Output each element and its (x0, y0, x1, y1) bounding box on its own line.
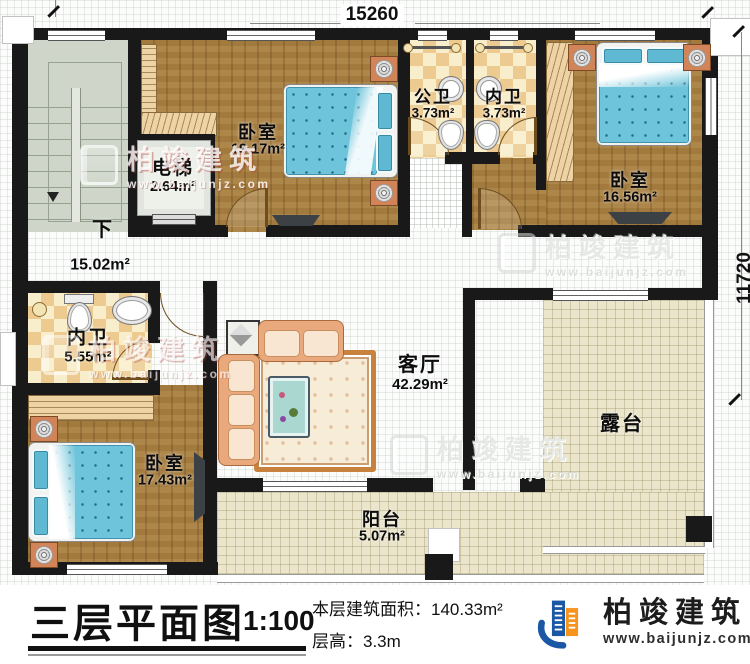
window-box-top-right (710, 18, 750, 56)
sink (112, 296, 152, 325)
floor-area-text: 本层建筑面积：140.33m² (312, 595, 503, 620)
wall-vestibule-divider (462, 158, 472, 237)
nightstand (30, 416, 58, 442)
room-label-balcony: 阳台 5.07m² (359, 510, 405, 545)
title-underline (28, 646, 306, 651)
lamp-icon (35, 546, 53, 564)
window-public-bath (418, 30, 447, 41)
rail-end (523, 43, 533, 53)
hallway-area-label: 15.02m² (70, 256, 130, 273)
wall-bath-bottom-a (398, 152, 408, 164)
lamp-icon (35, 420, 53, 438)
title-block: 三层平面图 1:100 本层建筑面积：140.33m² 层高：3.3m 柏竣建筑 (0, 585, 750, 664)
room-label-bedroom-bottom: 卧室 17.43m² (138, 454, 192, 489)
lamp-icon (375, 60, 393, 78)
stair-direction-arrow (47, 192, 59, 208)
sofa-loveseat (258, 320, 344, 362)
terrace-railing-bottom (543, 546, 705, 554)
elevator-door (152, 214, 196, 225)
corner-table (226, 320, 260, 356)
wall-living-bottom-a (217, 478, 263, 492)
wall-ensuite-left-bottom (12, 383, 160, 395)
room-label-bedroom-right: 卧室 16.56m² (603, 171, 657, 206)
dim-line (415, 23, 600, 24)
sofa-three-seat (218, 354, 260, 466)
dim-tick (701, 6, 713, 18)
wall-outer-left (12, 28, 28, 575)
wall-living-bottom-b (367, 478, 433, 492)
room-label-public-bath: 公卫 3.73m² (412, 89, 455, 122)
tv-top-bedroom (272, 215, 320, 226)
dim-tick (47, 5, 59, 17)
watermark-logo-icon (498, 233, 536, 273)
balcony-post (425, 554, 453, 580)
floor-plan-page: 下 电梯 2.64m² 卧室 19.17m² 公卫 3.73m² 内卫 3.73… (0, 0, 750, 664)
room-label-ensuite-left: 内卫 5.55m² (64, 329, 112, 366)
nightstand (683, 44, 711, 71)
dim-line (250, 23, 342, 24)
rail-end (451, 43, 461, 53)
stair-void-outline (48, 62, 122, 222)
stair-rail (71, 88, 81, 222)
flower-decor (279, 392, 285, 398)
flower-decor (289, 408, 298, 417)
wall-hall-top-a (128, 225, 228, 237)
lamp-icon (688, 49, 706, 67)
company-website: www.baijunjz.com (603, 631, 750, 647)
room-label-ensuite-top: 内卫 3.73m² (483, 89, 526, 122)
tv-right-bedroom (608, 212, 672, 224)
stairs-down-label: 下 (92, 220, 114, 242)
shower-head (32, 302, 47, 317)
coffee-table (268, 376, 310, 438)
terrace-post (686, 516, 712, 542)
dim-tick (728, 393, 740, 405)
wall-hall-top-b (266, 225, 410, 237)
bed-top-bedroom (283, 84, 398, 178)
dim-line-right (741, 32, 742, 400)
floor-plan-canvas: 下 电梯 2.64m² 卧室 19.17m² 公卫 3.73m² 内卫 3.73… (0, 0, 750, 585)
window-balcony (263, 481, 367, 492)
company-logo-icon (537, 595, 593, 651)
dimension-width: 15260 (341, 4, 404, 26)
wall-hall-top-c (518, 225, 702, 237)
room-label-living-room: 客厅 42.29m² (392, 355, 448, 393)
tv-bottom-bedroom (194, 452, 205, 522)
lamp-icon (230, 324, 253, 347)
window-bedroom-right (575, 30, 655, 41)
bed-right-bedroom (596, 42, 692, 146)
lamp-icon (573, 49, 591, 67)
nightstand (370, 180, 398, 206)
wall-bath-divider (466, 40, 474, 158)
nightstand (370, 56, 398, 82)
nightstand (568, 44, 596, 71)
room-label-terrace: 露台 (600, 414, 644, 436)
wall-bedroom-bottom-right (203, 281, 217, 570)
company-name: 柏竣建筑 (603, 599, 750, 628)
window-box-left (0, 332, 16, 386)
window-box-top-left (2, 16, 34, 44)
nightstand (30, 542, 58, 568)
wall-terrace-left (463, 300, 475, 490)
rail-end (475, 43, 485, 53)
window-terrace (553, 290, 648, 301)
company-logo: 柏竣建筑 www.baijunjz.com (537, 595, 750, 651)
balcony-railing (217, 574, 704, 583)
window-bedroom-top (227, 30, 315, 41)
title-underline-thin (28, 654, 306, 656)
lamp-icon (375, 184, 393, 202)
plan-scale: 1:100 (243, 605, 315, 637)
bed-bottom-bedroom (28, 442, 136, 542)
window-bedroom-bottom (67, 564, 167, 575)
door-bedroom-bottom (160, 293, 204, 337)
watermark-logo-icon (390, 435, 428, 475)
bath-vestibule-floor (408, 158, 462, 228)
flower-decor (280, 416, 286, 422)
wall-terrace-top-b (648, 288, 718, 300)
closet-top (141, 112, 217, 136)
window-ensuite-top (490, 30, 518, 41)
wall-terrace-top-a (463, 288, 553, 300)
dimension-height: 11720 (734, 247, 750, 309)
room-label-bedroom-top: 卧室 19.17m² (231, 123, 285, 158)
wall-living-bottom-c (520, 478, 545, 492)
room-label-elevator: 电梯 2.64m² (150, 159, 196, 195)
wall-ensuite-left-top (12, 281, 160, 293)
terrace-railing (704, 300, 714, 548)
balcony-floor (217, 492, 704, 576)
rail-end (403, 43, 413, 53)
plan-title: 三层平面图 (30, 591, 245, 649)
window-stairs (48, 30, 105, 41)
wall-ensuite-closet (536, 40, 546, 190)
floor-height-text: 层高：3.3m (312, 627, 401, 652)
closet-top-left (141, 44, 157, 116)
wall-bath-bottom-b (445, 152, 500, 164)
window-bedroom-right-side (705, 78, 717, 135)
